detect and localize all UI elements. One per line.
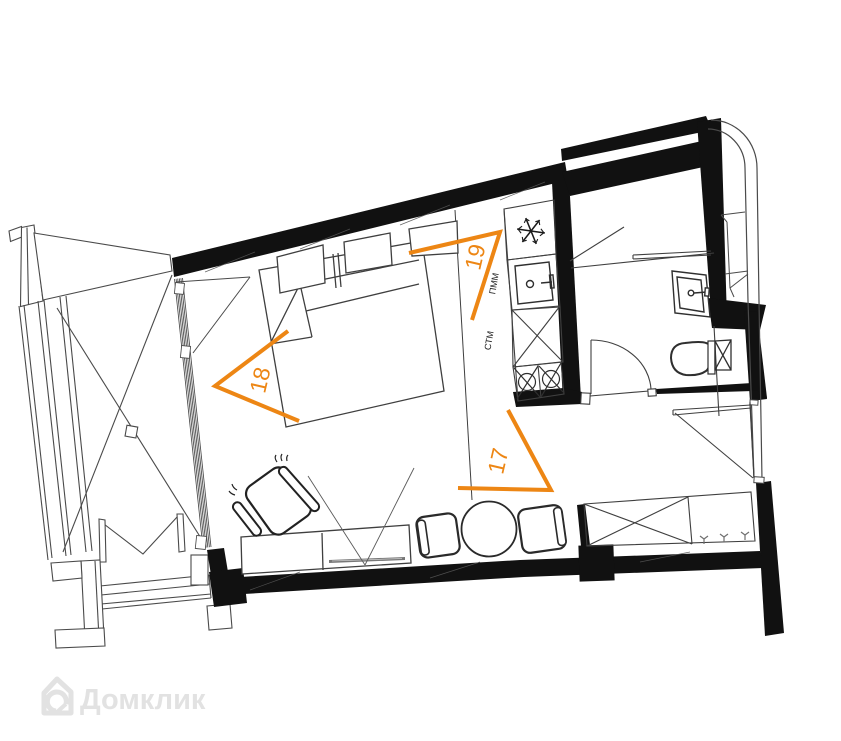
svg-text:Домклик: Домклик: [80, 684, 206, 716]
